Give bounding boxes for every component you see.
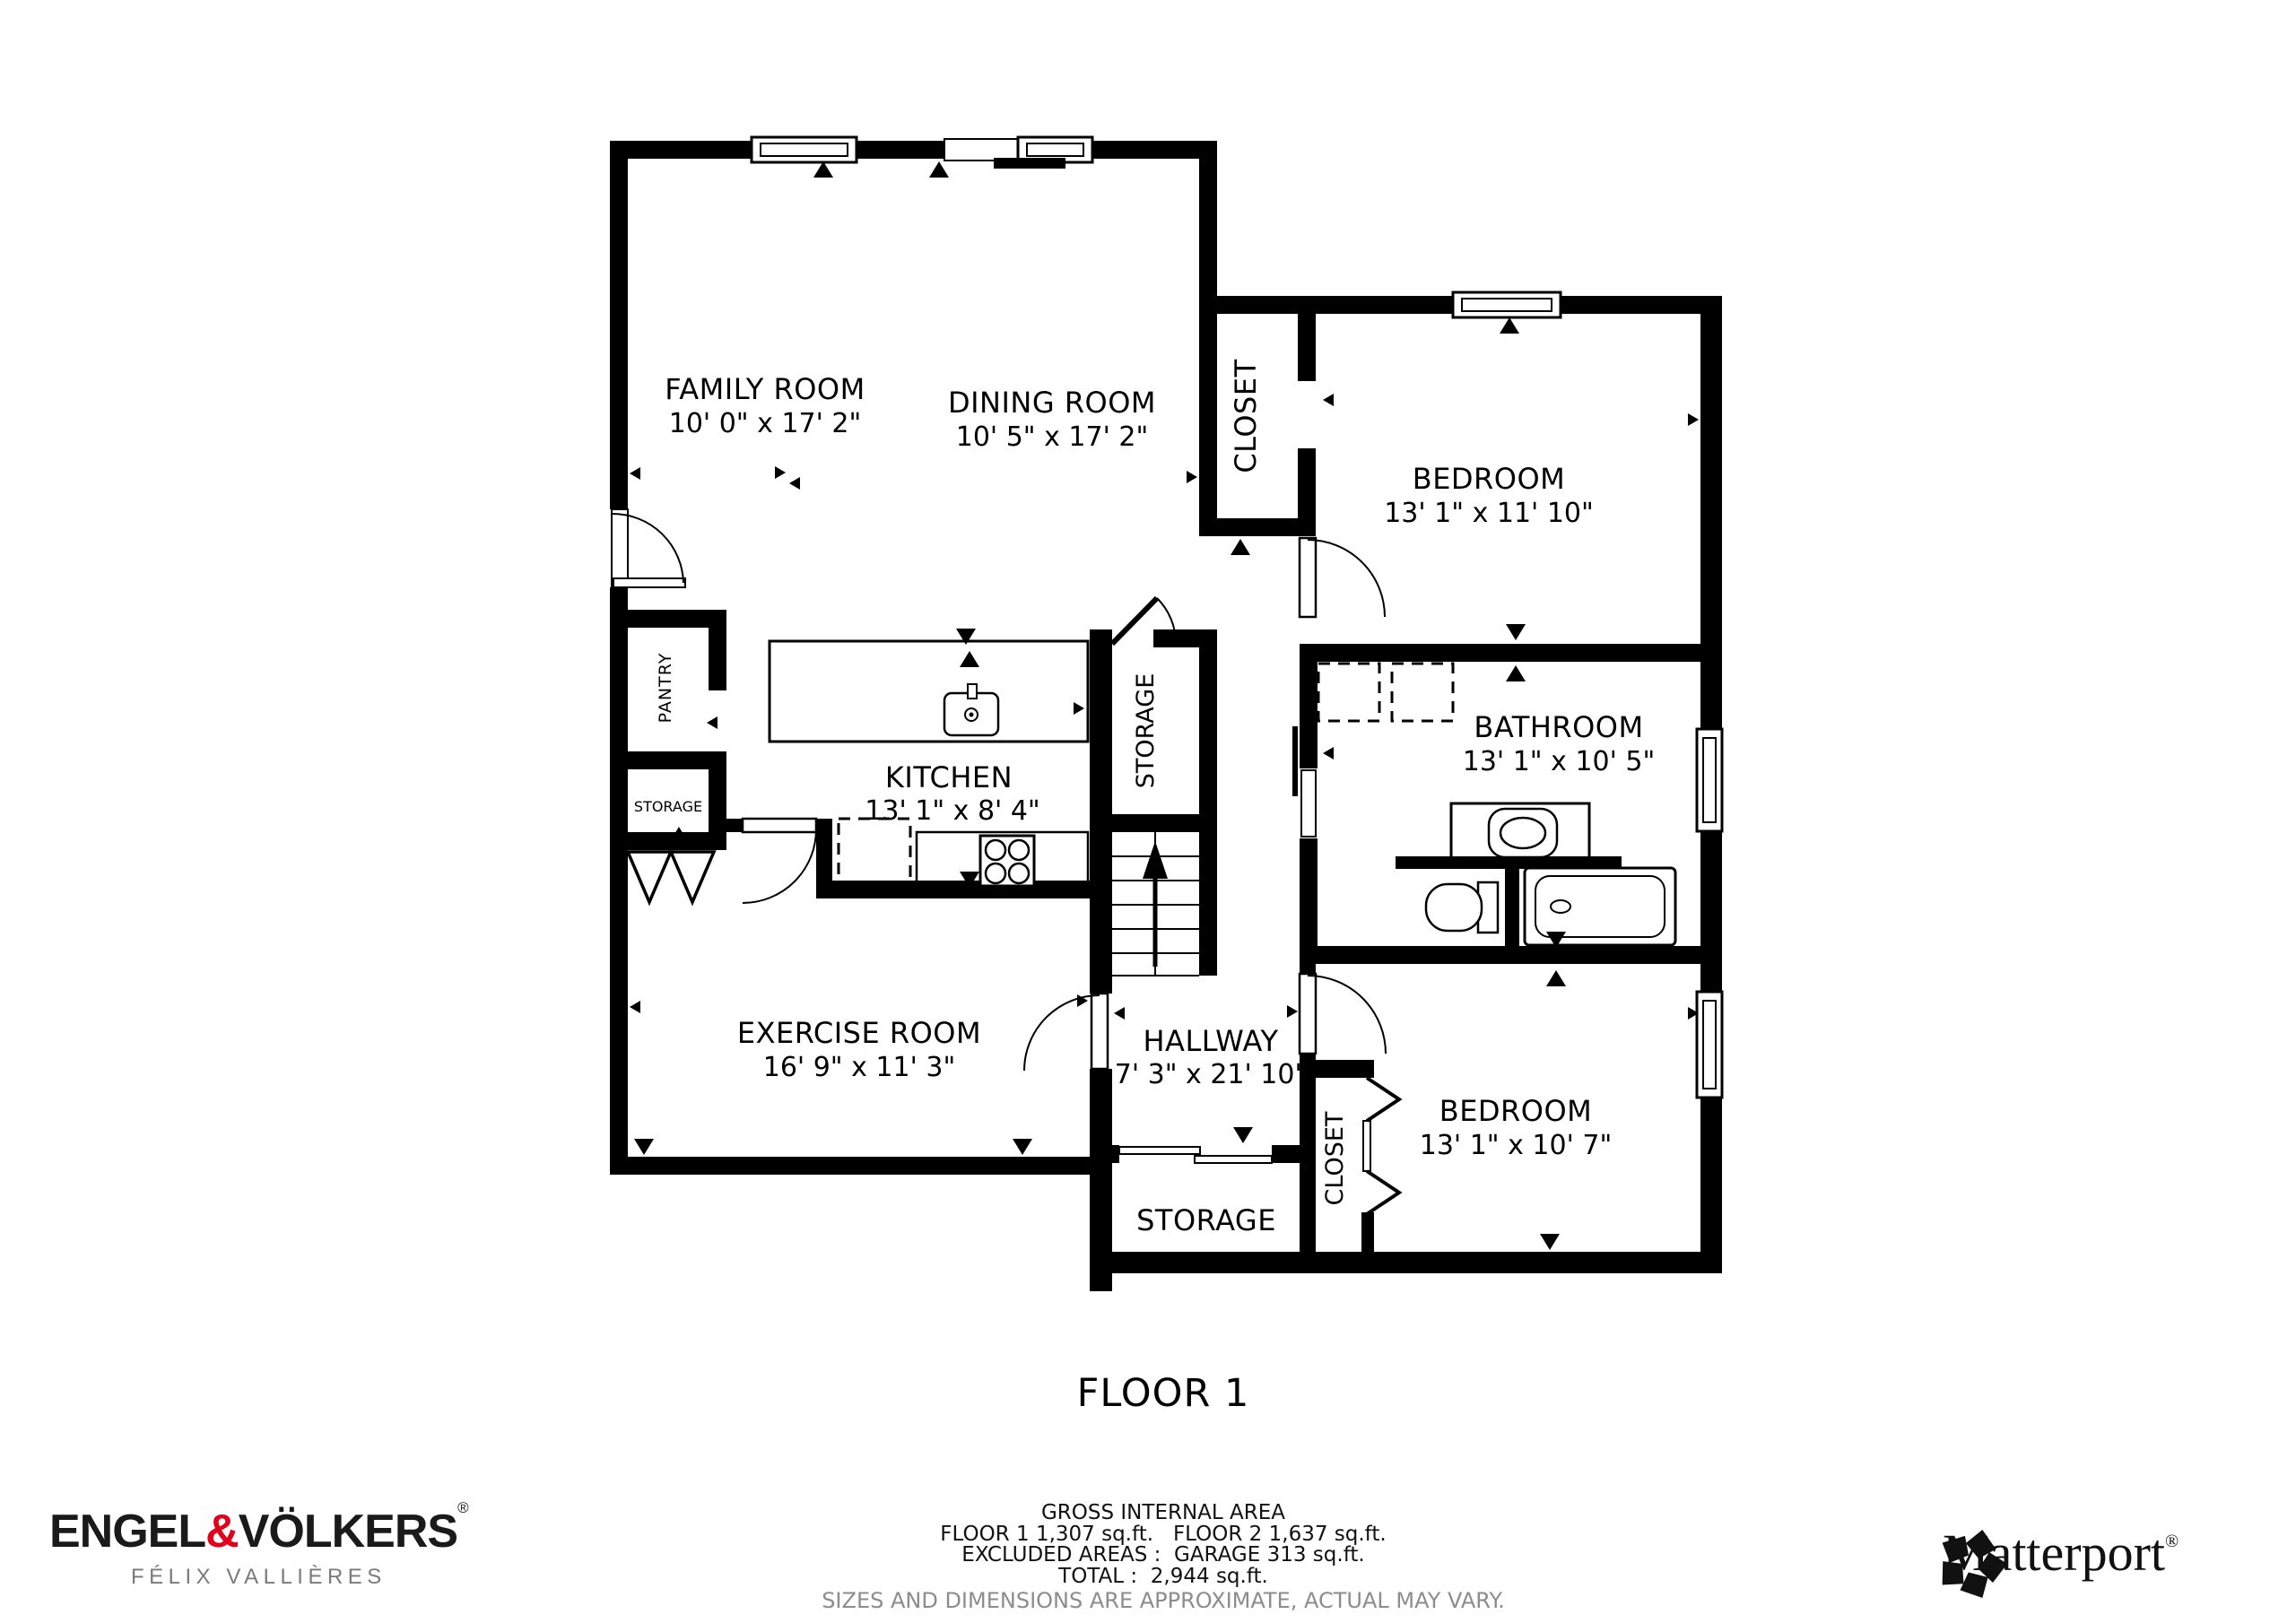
window-bedroom-bottom [1697,992,1722,1098]
area-excluded: EXCLUDED AREAS : GARAGE 313 sq.ft. [804,1545,1522,1567]
vanity [1451,803,1589,859]
room-dims-bedroom-top: 13' 1" x 11' 10" [1384,498,1594,529]
kitchen-island [770,641,1088,742]
wall-shelf-bar [994,158,1065,169]
room-label-closet-top: CLOSET [1229,359,1263,473]
opening-dining [944,139,1018,161]
window-bedroom-top [1453,292,1561,317]
floorplan-page: FAMILY ROOM 10' 0" x 17' 2" DINING ROOM … [0,0,2296,1623]
appliance-dashed-2 [1392,664,1453,721]
floor-title: FLOOR 1 [1077,1371,1250,1416]
exercise-room-door [1024,994,1108,1071]
room-dims-bedroom-bottom: 13' 1" x 10' 7" [1420,1130,1613,1161]
kitchen-door [743,819,816,903]
room-labels: FAMILY ROOM 10' 0" x 17' 2" DINING ROOM … [634,359,1655,1237]
entry-double-door [628,852,714,902]
toilet [1426,882,1498,933]
room-label-storage-mid: STORAGE [1132,673,1160,789]
agent-name: FÉLIX VALLIÈRES [131,1565,387,1590]
area-disclaimer: SIZES AND DIMENSIONS ARE APPROXIMATE, AC… [804,1591,1522,1612]
room-label-bedroom-top: BEDROOM [1413,462,1566,496]
matterport-logo: Matterport® [1930,1523,2179,1583]
room-label-dining: DINING ROOM [948,386,1156,420]
staircase [1112,832,1199,976]
floor-plan-drawing: FAMILY ROOM 10' 0" x 17' 2" DINING ROOM … [0,0,2296,1623]
room-label-kitchen: KITCHEN [885,760,1013,794]
room-label-hallway: HALLWAY [1143,1024,1278,1058]
bedroom-bottom-door [1300,974,1386,1054]
appliance-dashed-1 [1318,664,1379,721]
brand-registered-mark: ® [457,1499,469,1516]
brand-left: ENGEL [49,1506,205,1558]
room-label-closet-bottom: CLOSET [1321,1111,1349,1205]
brand-ampersand: & [205,1506,239,1558]
room-dims-exercise: 16' 9" x 11' 3" [763,1052,956,1083]
room-dims-dining: 10' 5" x 17' 2" [956,421,1149,453]
hallway-sliding-door [1119,1147,1272,1163]
room-label-bedroom-bottom: BEDROOM [1439,1094,1593,1128]
room-label-family: FAMILY ROOM [665,372,865,406]
family-room-door [612,509,685,587]
room-label-storage-bottom: STORAGE [1136,1203,1276,1237]
brand-right: VÖLKERS [239,1506,457,1558]
bathroom-fixtures [1318,664,1675,946]
bedroom-top-door [1300,538,1385,617]
room-dims-bathroom: 13' 1" x 10' 5" [1463,746,1656,777]
closet-bottom-bifold-doors [1363,1078,1399,1214]
matterport-registered-mark: ® [2165,1532,2179,1551]
bathtub [1525,868,1675,945]
room-dims-hallway: 7' 3" x 21' 10" [1115,1059,1308,1090]
window-family [752,137,857,162]
dishwasher-dashed [839,819,910,883]
area-floors: FLOOR 1 1,307 sq.ft. FLOOR 2 1,637 sq.ft… [804,1524,1522,1546]
matterport-icon [1930,1523,2013,1605]
bathroom-divider-wall [1505,856,1519,946]
room-label-pantry: PANTRY [656,653,675,724]
stove [980,836,1034,886]
stairs-up-arrow [1143,841,1168,879]
room-label-bathroom: BATHROOM [1474,710,1643,744]
area-total: TOTAL : 2,944 sq.ft. [804,1567,1522,1588]
room-dims-kitchen: 13' 1" x 8' 4" [865,795,1039,827]
room-dims-family: 10' 0" x 17' 2" [669,408,862,439]
area-title: GROSS INTERNAL AREA [804,1503,1522,1524]
window-bathroom [1697,729,1722,831]
room-label-storage-left: STORAGE [634,798,702,815]
engel-voelkers-logo: ENGEL&VÖLKERS® [49,1499,469,1558]
gross-area-block: GROSS INTERNAL AREA FLOOR 1 1,307 sq.ft.… [804,1503,1522,1612]
room-label-exercise: EXERCISE ROOM [737,1016,981,1050]
